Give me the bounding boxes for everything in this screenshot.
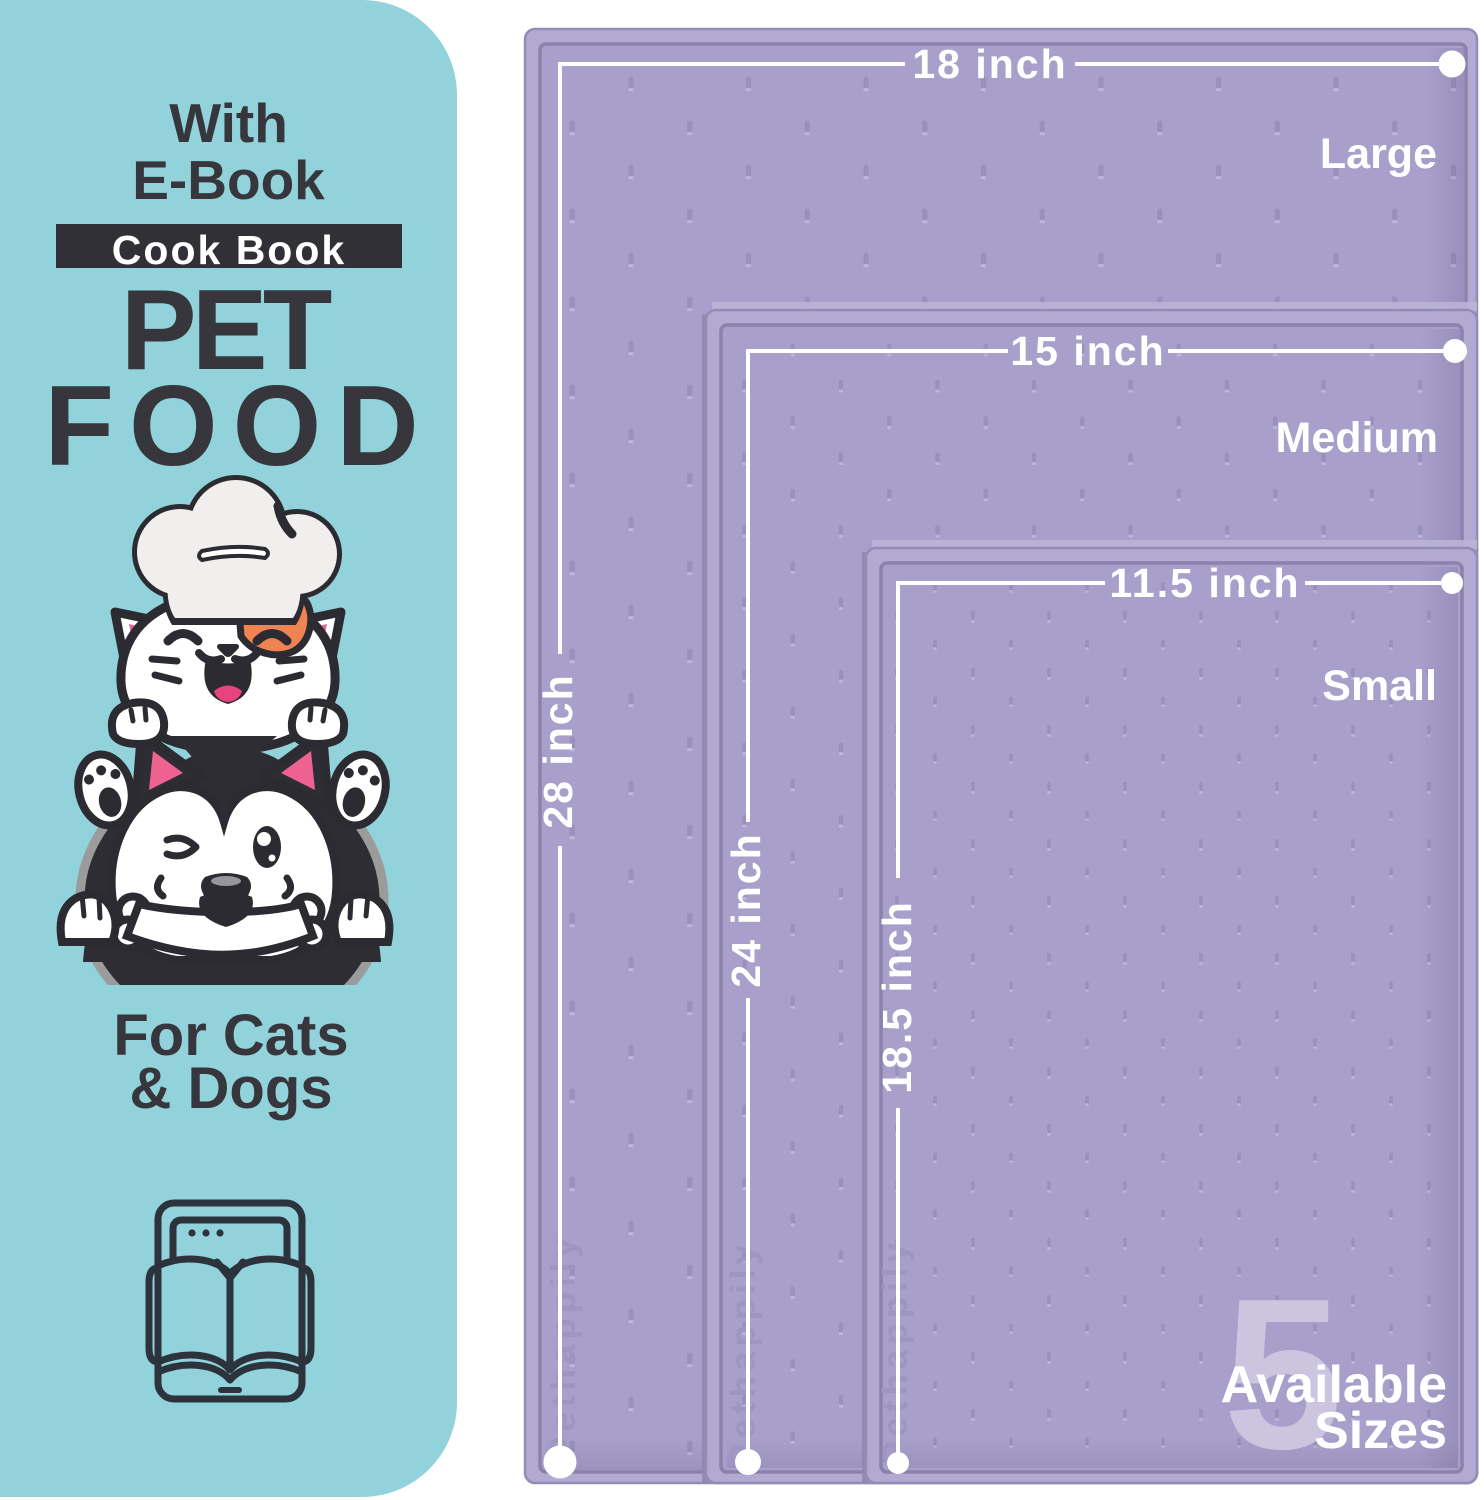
svg-text:Pethappily: Pethappily xyxy=(544,1233,583,1460)
svg-text:18.5 inch: 18.5 inch xyxy=(874,900,920,1093)
svg-text:Small: Small xyxy=(1322,662,1437,710)
svg-text:18 inch: 18 inch xyxy=(912,41,1067,87)
svg-text:Sizes: Sizes xyxy=(1314,1402,1447,1460)
svg-text:Large: Large xyxy=(1320,130,1437,178)
svg-text:15 inch: 15 inch xyxy=(1010,328,1165,374)
svg-text:Pethappily: Pethappily xyxy=(876,1238,915,1465)
svg-text:11.5 inch: 11.5 inch xyxy=(1109,560,1300,606)
svg-text:Pethappily: Pethappily xyxy=(724,1240,763,1467)
svg-text:Medium: Medium xyxy=(1276,414,1438,462)
svg-text:28 inch: 28 inch xyxy=(535,673,581,828)
svg-text:24 inch: 24 inch xyxy=(723,832,769,987)
